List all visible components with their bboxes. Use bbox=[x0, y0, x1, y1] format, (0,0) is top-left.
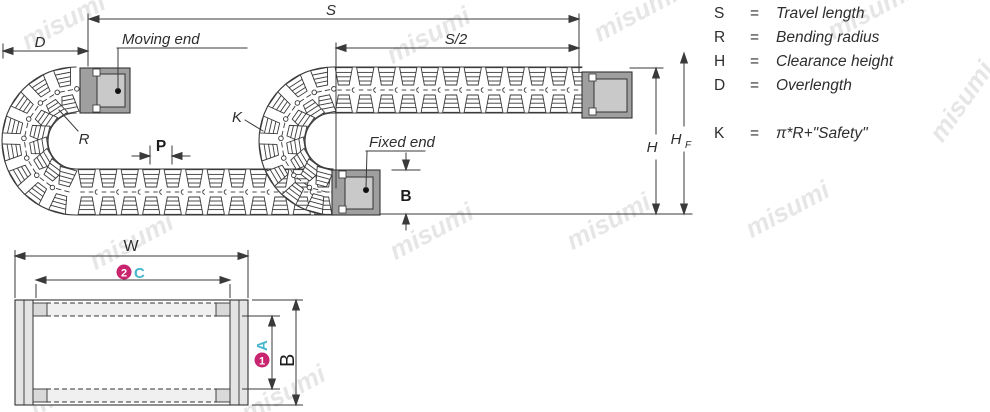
moving-end-block-right bbox=[582, 72, 632, 118]
legend-meaning: Travel length bbox=[776, 2, 986, 26]
legend-row-r: R = Bending radius bbox=[714, 26, 986, 50]
h-dimension: H bbox=[630, 68, 663, 214]
legend-symbol: R bbox=[714, 26, 750, 50]
legend-equals: = bbox=[750, 2, 776, 26]
legend-symbol: D bbox=[714, 74, 750, 98]
legend-row-s: S = Travel length bbox=[714, 2, 986, 26]
legend-equals: = bbox=[750, 26, 776, 50]
fixed-end-block bbox=[332, 170, 380, 215]
cross-section-view: W 2 C 1 A bbox=[15, 238, 303, 405]
legend-meaning: Bending radius bbox=[776, 26, 986, 50]
moving-end-block bbox=[80, 68, 130, 113]
legend-symbol: K bbox=[714, 122, 750, 146]
fixed-end-text: Fixed end bbox=[369, 134, 436, 151]
dim-label-s: S bbox=[326, 2, 336, 19]
moving-end-label: Moving end bbox=[117, 31, 247, 89]
hf-dimension: H F bbox=[671, 53, 692, 214]
legend-symbol: S bbox=[714, 2, 750, 26]
dim-label-d: D bbox=[35, 34, 46, 51]
legend-meaning: Clearance height bbox=[776, 50, 986, 74]
legend-symbol: H bbox=[714, 50, 750, 74]
dim-label-hf-sub: F bbox=[685, 140, 692, 151]
dim-label-b-section: B bbox=[277, 354, 299, 367]
dim-label-hf: H bbox=[671, 131, 682, 148]
dim-label-h: H bbox=[647, 139, 658, 156]
chain-left-bend bbox=[2, 67, 84, 215]
cross-section-body bbox=[15, 300, 248, 405]
legend-equals: = bbox=[750, 50, 776, 74]
legend-meaning: π*R+"Safety" bbox=[776, 122, 986, 146]
legend-meaning: Overlength bbox=[776, 74, 986, 98]
chain-top-run bbox=[333, 67, 582, 113]
side-view: S S/2 D Moving end bbox=[2, 2, 692, 230]
dim-label-c: C bbox=[134, 265, 145, 282]
drawing-canvas: misumi misumi misumi misumi misumi misum… bbox=[0, 0, 990, 412]
dim-label-a: A bbox=[254, 340, 271, 351]
dim-label-r: R bbox=[79, 131, 90, 148]
b-dimension-side: B bbox=[392, 153, 420, 230]
callout-1-number: 1 bbox=[259, 356, 265, 368]
c-dimension: 2 C bbox=[36, 265, 230, 299]
legend-equals: = bbox=[750, 122, 776, 146]
moving-end-text: Moving end bbox=[122, 31, 200, 48]
dim-label-b: B bbox=[400, 188, 411, 205]
legend-row-k: K = π*R+"Safety" bbox=[714, 122, 986, 146]
k-leader: K bbox=[232, 109, 263, 131]
callout-2-number: 2 bbox=[121, 268, 127, 280]
dim-label-w: W bbox=[123, 238, 139, 255]
dim-label-p: P bbox=[156, 138, 166, 155]
legend: S = Travel length R = Bending radius H =… bbox=[714, 2, 986, 146]
p-dimension: P bbox=[132, 138, 190, 164]
legend-row-h: H = Clearance height bbox=[714, 50, 986, 74]
legend-row-d: D = Overlength bbox=[714, 74, 986, 98]
dim-label-k: K bbox=[232, 109, 243, 126]
d-dimension: D bbox=[3, 34, 88, 58]
w-dimension: W bbox=[15, 238, 248, 298]
dim-label-s-half: S/2 bbox=[445, 31, 468, 48]
r-leader: R bbox=[59, 110, 90, 148]
legend-equals: = bbox=[750, 74, 776, 98]
